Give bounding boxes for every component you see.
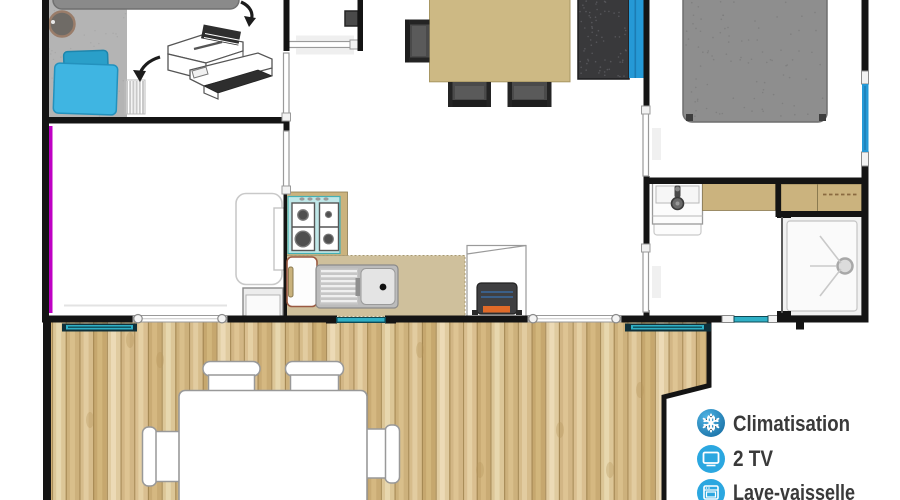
svg-text:Climatisation: Climatisation xyxy=(733,411,850,436)
svg-text:2 TV: 2 TV xyxy=(733,446,773,471)
svg-text:Lave-vaisselle: Lave-vaisselle xyxy=(733,480,855,500)
